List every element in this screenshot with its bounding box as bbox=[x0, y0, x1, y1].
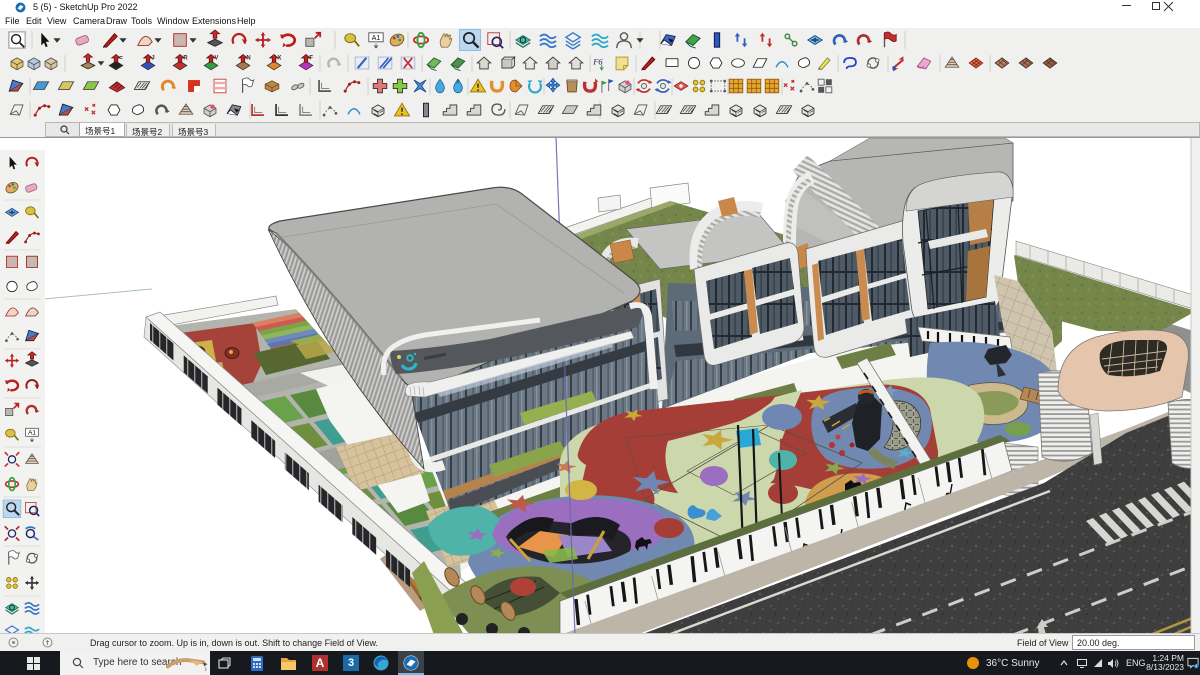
svg-text:V: V bbox=[214, 56, 218, 62]
svg-text:F: F bbox=[309, 56, 313, 62]
svg-text:J: J bbox=[151, 56, 154, 62]
svg-text:N: N bbox=[246, 56, 250, 62]
svg-text:A1: A1 bbox=[372, 33, 381, 42]
svg-text:=: = bbox=[119, 56, 123, 62]
svg-text:4: 4 bbox=[1195, 664, 1198, 669]
svg-text:X: X bbox=[277, 56, 281, 62]
svg-text:R: R bbox=[183, 56, 188, 62]
svg-text:#: # bbox=[456, 79, 459, 85]
svg-text:A1: A1 bbox=[28, 430, 36, 437]
